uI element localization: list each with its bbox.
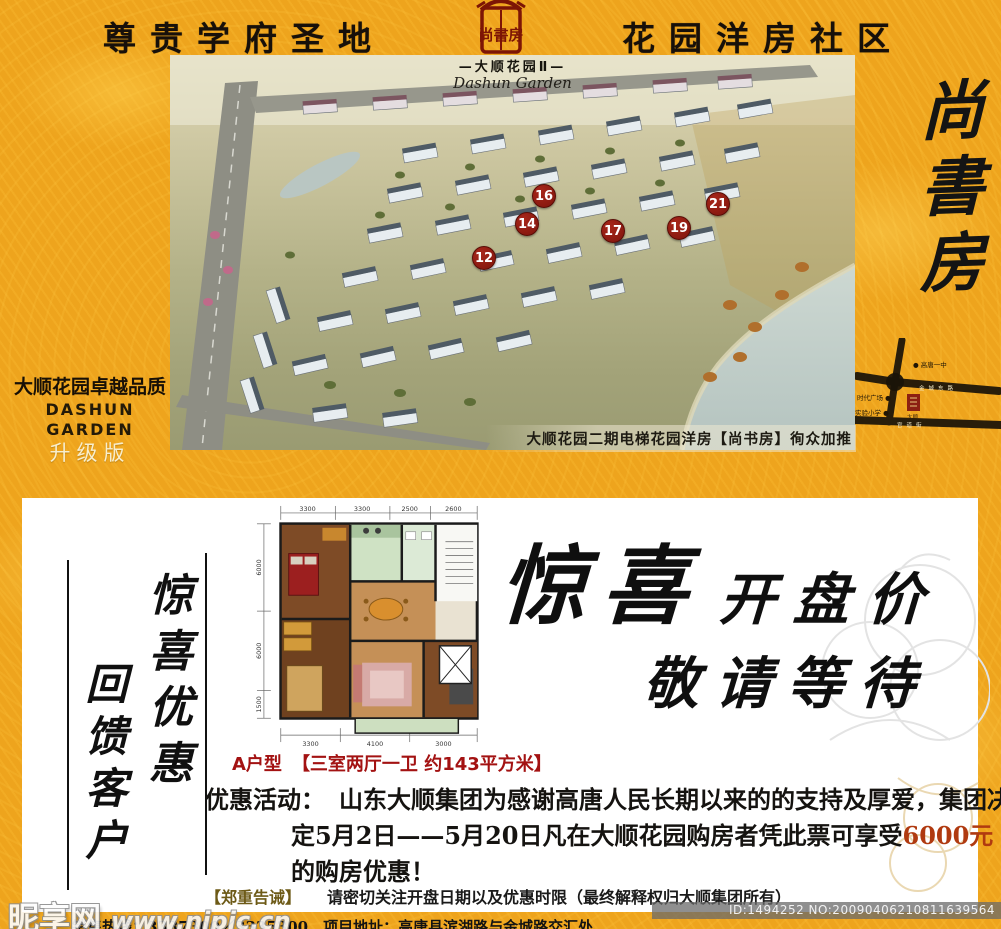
watermark-url: www.nipic.cn	[111, 907, 290, 929]
map-poi-school: ● 高唐一中	[913, 360, 947, 369]
map-poi-plaza: 时代广场 ●	[857, 393, 891, 402]
map-road-label: 金城东路	[919, 384, 957, 392]
brand-line-en: DASHUN GARDEN	[4, 400, 176, 440]
map-seal-caption: 大顺	[907, 413, 919, 421]
headline-word-surprise: 惊喜	[498, 544, 707, 630]
location-mini-map: ● 高唐一中 金城东路 时代广场 ● 实验小学 ● 官道街 大顺	[855, 338, 1001, 460]
headline-calligraphy: 惊喜 开盘价 敬请等待	[494, 544, 973, 712]
svg-text:2500: 2500	[402, 505, 418, 513]
watermark-nipic: 昵享网 www.nipic.cn	[8, 893, 290, 929]
promo-line2: 定5月2日——5月20日凡在大顺花园购房者凭此票可享受	[291, 821, 903, 850]
brand-block: 大顺花园卓越品质 DASHUN GARDEN 升级版	[4, 376, 176, 466]
header-left-title: 尊贵学府圣地	[103, 12, 385, 60]
map-road-bottom-label: 官道街	[897, 421, 926, 429]
brand-line-edition: 升级版	[4, 440, 176, 466]
promo-paragraph: 优惠活动：山东大顺集团为感谢高唐人民长期以来的的支持及厚爱，集团决 定5月2日—…	[205, 782, 971, 890]
promo-line3: 的购房优惠！	[291, 857, 435, 886]
watermark-site-logo: 昵享网	[8, 893, 101, 929]
svg-text:2600: 2600	[445, 505, 461, 513]
aerial-title: —大顺花园Ⅱ— Dashun Garden	[170, 56, 855, 92]
building-marker-19: 19	[667, 216, 691, 240]
building-marker-21: 21	[706, 192, 730, 216]
svg-text:4100: 4100	[367, 740, 383, 748]
vertical-slogan-reward: 回馈客户	[82, 662, 124, 887]
aerial-caption: 大顺花园二期电梯花园洋房【尚书房】徇众加推	[486, 425, 856, 452]
svg-text:3300: 3300	[302, 740, 318, 748]
poster-canvas: 尊贵学府圣地 花园洋房社区 尚書房	[0, 0, 1001, 929]
vertical-slogan-surprise: 惊喜优惠	[144, 572, 188, 797]
promo-line1: 山东大顺集团为感谢高唐人民长期以来的的支持及厚爱，集团决	[339, 785, 1001, 814]
building-marker-16: 16	[532, 184, 556, 208]
aerial-rendering: —大顺花园Ⅱ— Dashun Garden 12 14 16 17 19 21 …	[170, 55, 855, 450]
svg-text:3000: 3000	[435, 740, 451, 748]
brand-seal-icon: 尚書房	[455, 0, 547, 54]
building-marker-17: 17	[601, 219, 625, 243]
left-vertical-rule	[67, 560, 69, 890]
svg-text:1500: 1500	[255, 696, 263, 712]
building-marker-14: 14	[515, 212, 539, 236]
aerial-title-en: Dashun Garden	[170, 74, 855, 92]
brand-line-cn: 大顺花园卓越品质	[4, 376, 176, 400]
svg-text:6000: 6000	[255, 559, 263, 575]
promo-discount-amount: 6000元	[903, 821, 994, 850]
map-poi-school2: 实验小学 ●	[855, 408, 889, 417]
seal-text: 尚書房	[478, 26, 523, 44]
aerial-title-cn: —大顺花园Ⅱ—	[170, 56, 855, 75]
promo-label: 优惠活动：	[205, 785, 325, 814]
map-seal-icon	[907, 394, 920, 411]
svg-text:3300: 3300	[354, 505, 370, 513]
headline-word-openingprice: 开盘价	[718, 572, 943, 628]
vertical-calligraphy-shushufang: 尚書房	[868, 76, 978, 320]
svg-text:6000: 6000	[255, 643, 263, 659]
watermark-id-bar: ID:1494252 NO:20090406210811639564	[652, 902, 1001, 919]
header-right-title: 花园洋房社区	[622, 12, 904, 60]
building-marker-12: 12	[472, 246, 496, 270]
unit-spec-label: 【三室两厅一卫 约143平方米】	[292, 754, 552, 775]
floorplan-a: 3300 3300 2500 2600 6000 6000 1500 3300 …	[248, 502, 504, 748]
aerial-illustration	[170, 55, 855, 450]
unit-type-label: A户型	[232, 754, 282, 775]
headline-line2: 敬请等待	[642, 656, 967, 712]
floorplan-caption: A户型【三室两厅一卫 约143平方米】	[232, 750, 512, 776]
svg-text:3300: 3300	[299, 505, 315, 513]
